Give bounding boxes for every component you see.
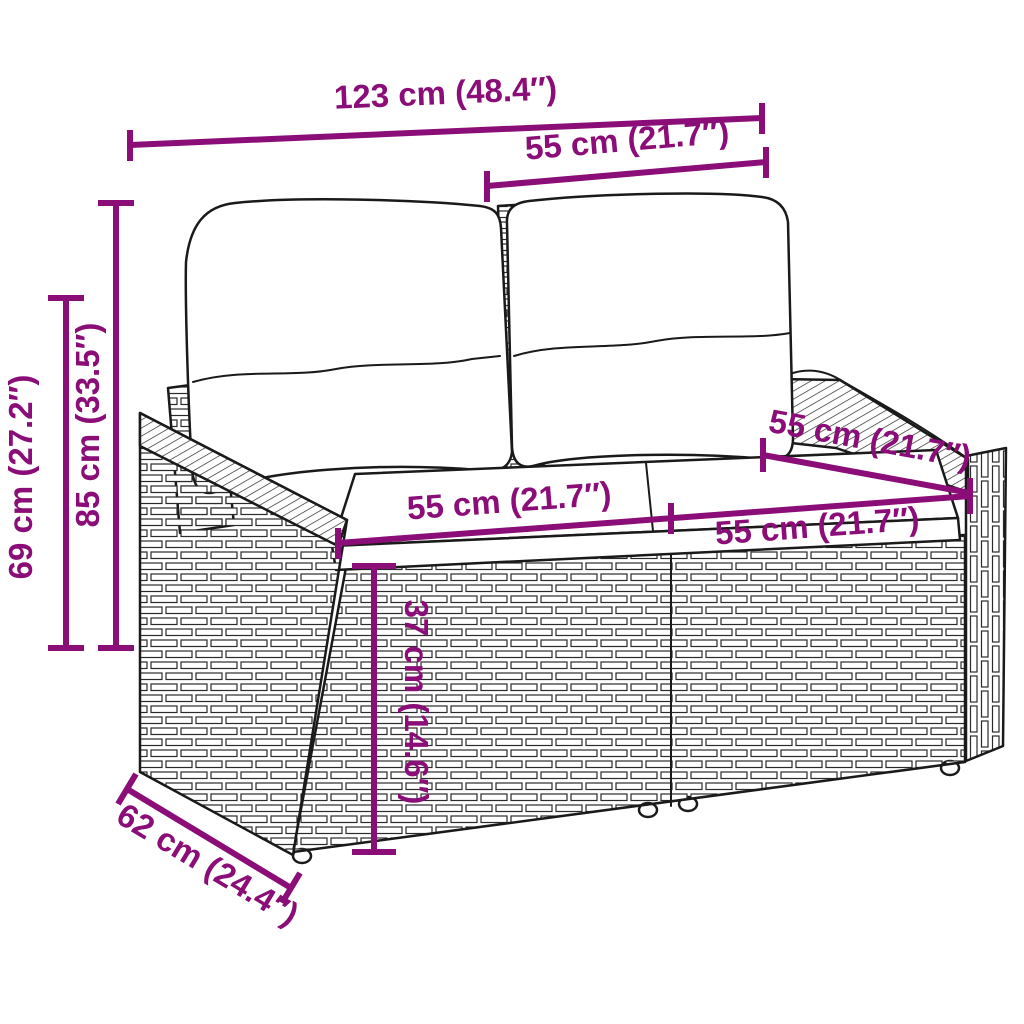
seat-base <box>293 535 965 852</box>
dimension-label-backrest-width: 55 cm (21.7″) <box>523 112 730 166</box>
front-panel <box>293 535 965 852</box>
dimension-label-armrest-height: 69 cm (27.2″) <box>2 375 39 580</box>
dimension-diagram: 123 cm (48.4″) 55 cm (21.7″) 85 cm (33.5… <box>0 0 1024 1024</box>
dimension-label-seat-height: 37 cm (14.6″) <box>398 600 435 805</box>
sofa-dimension-drawing: 123 cm (48.4″) 55 cm (21.7″) 85 cm (33.5… <box>0 0 1024 1024</box>
dimension-total-height: 85 cm (33.5″) <box>69 203 134 648</box>
back-cushion-right <box>507 194 793 467</box>
dimension-label-total-height: 85 cm (33.5″) <box>69 323 106 528</box>
back-cushions <box>186 194 793 493</box>
dimension-label-overall-width: 123 cm (48.4″) <box>333 69 557 116</box>
back-cushion-left <box>186 199 512 493</box>
